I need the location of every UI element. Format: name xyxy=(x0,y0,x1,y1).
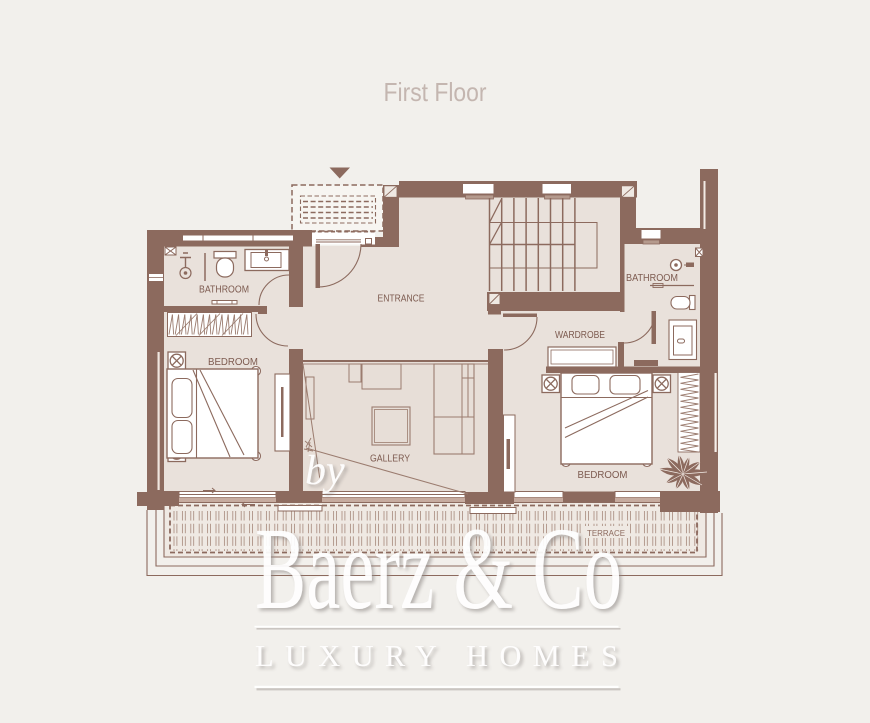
svg-text:ENTRANCE: ENTRANCE xyxy=(378,293,425,305)
svg-text:BEDROOM: BEDROOM xyxy=(578,469,628,481)
svg-text:First Floor: First Floor xyxy=(384,77,487,107)
svg-text:WARDROBE: WARDROBE xyxy=(555,329,605,341)
svg-text:BATHROOM: BATHROOM xyxy=(626,272,678,284)
svg-text:Baerz & Co: Baerz & Co xyxy=(255,503,622,634)
svg-text:BEDROOM: BEDROOM xyxy=(208,356,258,368)
svg-text:by: by xyxy=(305,448,345,494)
svg-text:GALLERY: GALLERY xyxy=(370,453,410,465)
svg-text:BATHROOM: BATHROOM xyxy=(199,284,249,296)
